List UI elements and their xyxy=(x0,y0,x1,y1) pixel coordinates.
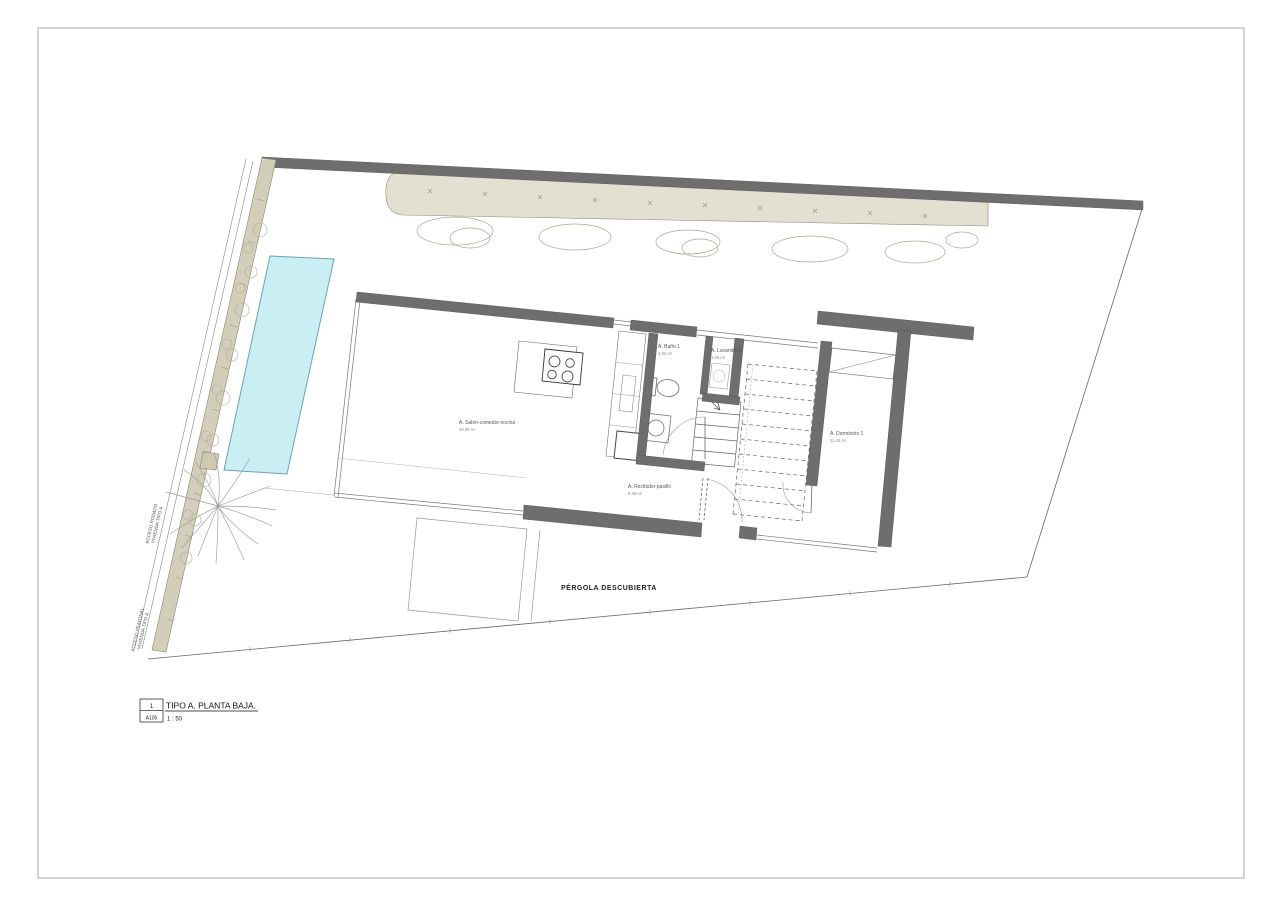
drawing-sheet: A. Salón-comedor-cocina 28.09 m² A. Baño… xyxy=(0,0,1280,905)
room-label-bath: A. Baño 1 xyxy=(658,344,680,350)
sheet-code: A105 xyxy=(146,716,158,722)
drawing-scale: 1 : 50 xyxy=(167,717,183,723)
room-area-laundry: 1.06 m² xyxy=(711,355,726,360)
drawing-title: TIPO A. PLANTA BAJA. xyxy=(166,701,256,711)
floor-plan-svg: A. Salón-comedor-cocina 28.09 m² A. Baño… xyxy=(0,0,1280,905)
room-label-bedroom: A. Dormitorio 1 xyxy=(830,431,864,437)
room-area-bedroom: 11.40 m² xyxy=(830,438,847,443)
room-area-hall: 8.55 m² xyxy=(628,491,643,496)
room-label-laundry: A. Lavandería xyxy=(711,348,742,354)
room-label-living: A. Salón-comedor-cocina xyxy=(459,420,515,426)
room-label-hall: A. Recibidor-pasillo xyxy=(628,484,671,490)
room-area-living: 28.09 m² xyxy=(459,427,476,432)
room-area-bath: 4.03 m² xyxy=(658,351,673,356)
sink-basin xyxy=(648,420,664,436)
wall-entry-stub xyxy=(739,526,757,540)
pergola-label: PÉRGOLA DESCUBIERTA xyxy=(561,583,657,592)
